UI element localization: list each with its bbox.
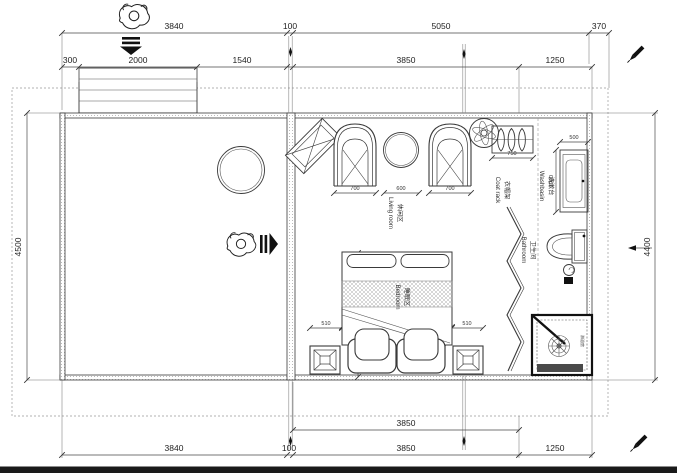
dim-label-chair1-700: 700	[350, 186, 359, 192]
entry-person-icon	[119, 4, 149, 29]
dim-label-top2-2000: 2000	[129, 55, 148, 65]
dim-label-top-5050: 5050	[432, 21, 451, 31]
entry-arrow-icon	[120, 37, 142, 55]
dim-label-bed-510-left: 510	[321, 321, 330, 327]
dim-label-washbasin-500: 500	[569, 135, 578, 141]
round-table	[218, 147, 265, 194]
room-label-living-zh: 休闲区	[396, 204, 404, 223]
floor-drain-icon	[564, 265, 575, 285]
pencil-icon-bottom	[629, 435, 647, 453]
dim-label-top-3840: 3840	[165, 21, 184, 31]
room-label-washbasin-zh: 洗漱台	[547, 177, 555, 196]
nightstand-left	[310, 346, 340, 374]
ottoman-2	[397, 329, 445, 373]
room-label-washbasin-en: Washbasin	[538, 171, 545, 202]
dim-label-top2-3850: 3850	[397, 55, 416, 65]
ottoman-1	[348, 329, 396, 373]
lounge-chair-2	[429, 124, 471, 186]
axis-markers	[289, 36, 466, 450]
dim-label-bottom2-1250: 1250	[546, 443, 565, 453]
room-person-icon	[227, 233, 256, 257]
dim-label-bottom2-3850: 3850	[397, 443, 416, 453]
room-label-coatrack-zh: 衣帽架	[503, 181, 511, 200]
dim-label-top2-300: 300	[63, 55, 77, 65]
room-label-bathroom-zh: 卫生间	[529, 241, 537, 260]
zigzag-partition	[507, 207, 524, 371]
room-label-living-en: Living room	[387, 197, 394, 229]
dim-label-top-370: 370	[592, 21, 606, 31]
room-label-bedroom-en: Bedroom	[394, 284, 401, 309]
dim-label-top2-1250: 1250	[546, 55, 565, 65]
dim-label-top2-1540: 1540	[233, 55, 252, 65]
dim-label-bottom2-100: 100	[282, 443, 296, 453]
lounge-chair-1	[334, 124, 376, 186]
pencil-icon-top	[626, 46, 644, 64]
entry-steps	[79, 68, 197, 113]
coffee-table	[384, 133, 419, 168]
dim-label-bottom1-3850: 3850	[397, 418, 416, 428]
dim-label-top-100: 100	[283, 21, 297, 31]
dim-label-bottom2-3840: 3840	[165, 443, 184, 453]
dim-label-left-4500: 4500	[13, 237, 23, 256]
nightstand-right	[453, 346, 483, 374]
toilet	[547, 230, 587, 263]
dim-label-chair2-700: 700	[445, 186, 454, 192]
footer-bar	[0, 467, 677, 473]
room-arrow-icon	[260, 233, 278, 255]
dim-label-table-600: 600	[396, 186, 405, 192]
floor-plan-canvas: 3840 100 5050 370 300 2000 1540 3850 125…	[0, 0, 677, 473]
dim-label-right-4400: 4400	[642, 237, 652, 256]
room-label-shower-zh: 淋浴房	[580, 335, 586, 347]
room-label-bedroom-zh: 睡眠区	[403, 288, 411, 307]
dim-label-bed-510-right: 510	[462, 321, 471, 327]
fan-icon	[470, 119, 499, 148]
floor-plan-drawing: 3840 100 5050 370 300 2000 1540 3850 125…	[0, 0, 677, 473]
room-label-coatrack-en: Coat rack	[494, 177, 501, 204]
dim-label-coatrack-750: 750	[507, 151, 516, 157]
room-label-bathroom-en: Bathroom	[520, 237, 527, 264]
washbasin	[560, 150, 588, 212]
